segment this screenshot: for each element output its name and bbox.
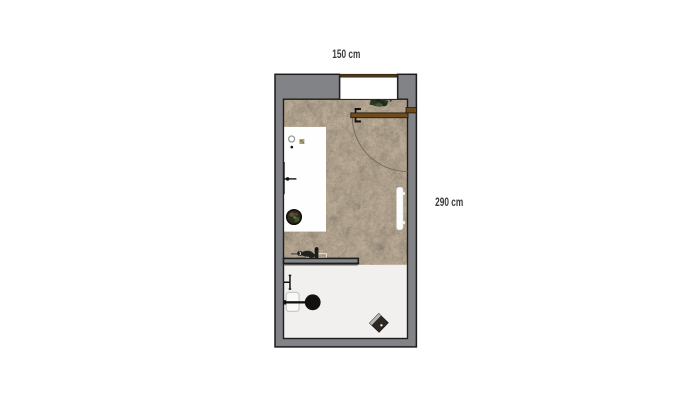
svg-text:290 cm: 290 cm [435,197,463,210]
svg-text:150 cm: 150 cm [332,49,360,62]
